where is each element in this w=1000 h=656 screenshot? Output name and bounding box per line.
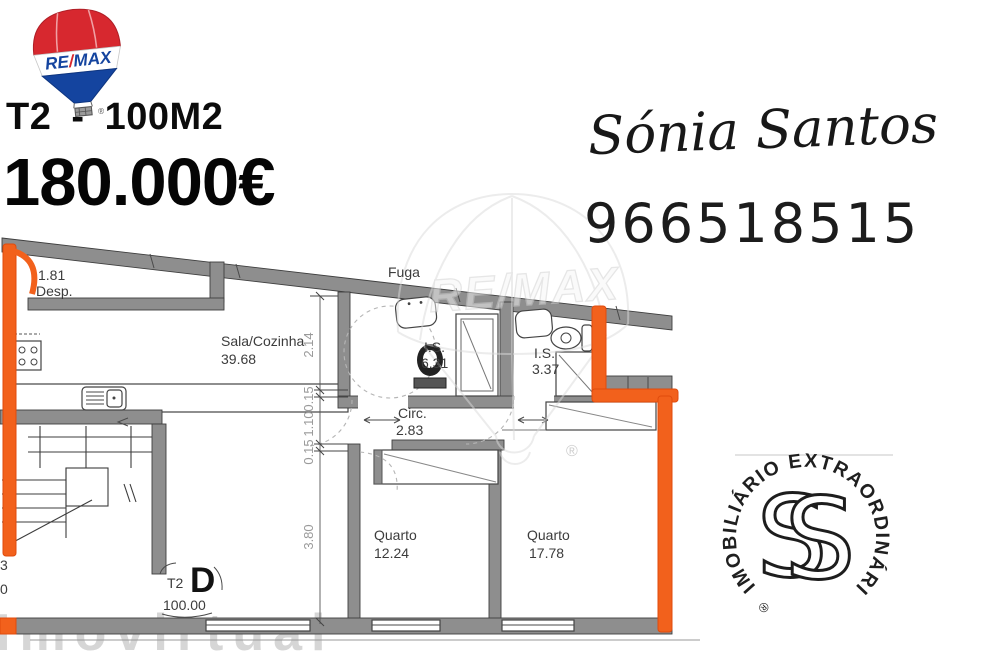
circ-area: 2.83	[396, 422, 423, 438]
sala-area: 39.68	[221, 351, 256, 367]
quarto1-wall-left	[348, 444, 360, 622]
desp-wall-v	[210, 262, 224, 302]
wardrobe1	[374, 450, 498, 484]
stair-wall-top	[0, 410, 162, 424]
quarto1-area: 12.24	[374, 545, 409, 561]
is2-label: I.S.	[534, 345, 555, 361]
dim-3-80: 3.80	[301, 524, 316, 549]
kitchen-sink-icon	[82, 387, 126, 410]
edge-fragment-top: 3	[0, 557, 8, 573]
edge-fragment-bottom: 0	[0, 581, 8, 597]
dim-1-10: 1.10	[301, 411, 316, 436]
page: { "header": { "logo": { "re": "RE", "sla…	[0, 0, 1000, 656]
highlight-right-wall	[658, 396, 672, 632]
quarto2-label: Quarto	[527, 527, 570, 543]
is2-area: 3.37	[532, 361, 559, 377]
desp-area: 1.81	[38, 267, 65, 283]
agent-phone: 966518515	[584, 192, 920, 255]
highlight-bottom-left	[0, 618, 16, 634]
bath1-shower-icon	[456, 314, 498, 396]
desp-label: Desp.	[36, 283, 73, 299]
kitchen-counter	[12, 384, 348, 412]
highlight-bath-wall	[592, 306, 606, 394]
flyer: Imovirtual	[0, 0, 1000, 656]
stair-wall-right	[152, 424, 166, 574]
stove-icon	[14, 334, 41, 370]
dim-0-15-b: 0.15	[301, 386, 316, 411]
is1-area: 6.31	[421, 355, 448, 371]
listing-price: 180.000€	[3, 144, 274, 221]
listing-title: T2 - 100M2	[6, 96, 223, 139]
unit-type: T2	[167, 575, 184, 591]
is1-label: I.S.	[424, 339, 445, 355]
fuga-label: Fuga	[388, 264, 420, 280]
quarto2-area: 17.78	[529, 545, 564, 561]
watermark-registered: ®	[566, 443, 578, 460]
unit-letter: D	[190, 561, 215, 600]
top-right-wall	[600, 376, 672, 389]
bath-wall-left	[338, 292, 350, 398]
stairs	[2, 426, 152, 546]
dim-0-15-a: 0.15	[301, 439, 316, 464]
desp-wall-h	[28, 298, 224, 310]
quarto1-label: Quarto	[374, 527, 417, 543]
stamp-monogram-front: S	[784, 475, 855, 605]
sala-label: Sala/Cozinha	[221, 333, 304, 349]
windows	[206, 620, 574, 631]
wardrobe1-top-wall	[392, 440, 504, 450]
circ-label: Circ.	[398, 405, 427, 421]
unit-area: 100.00	[163, 597, 206, 613]
edge-fragments: 3 0	[0, 557, 8, 597]
highlight-left-wall	[3, 244, 16, 556]
